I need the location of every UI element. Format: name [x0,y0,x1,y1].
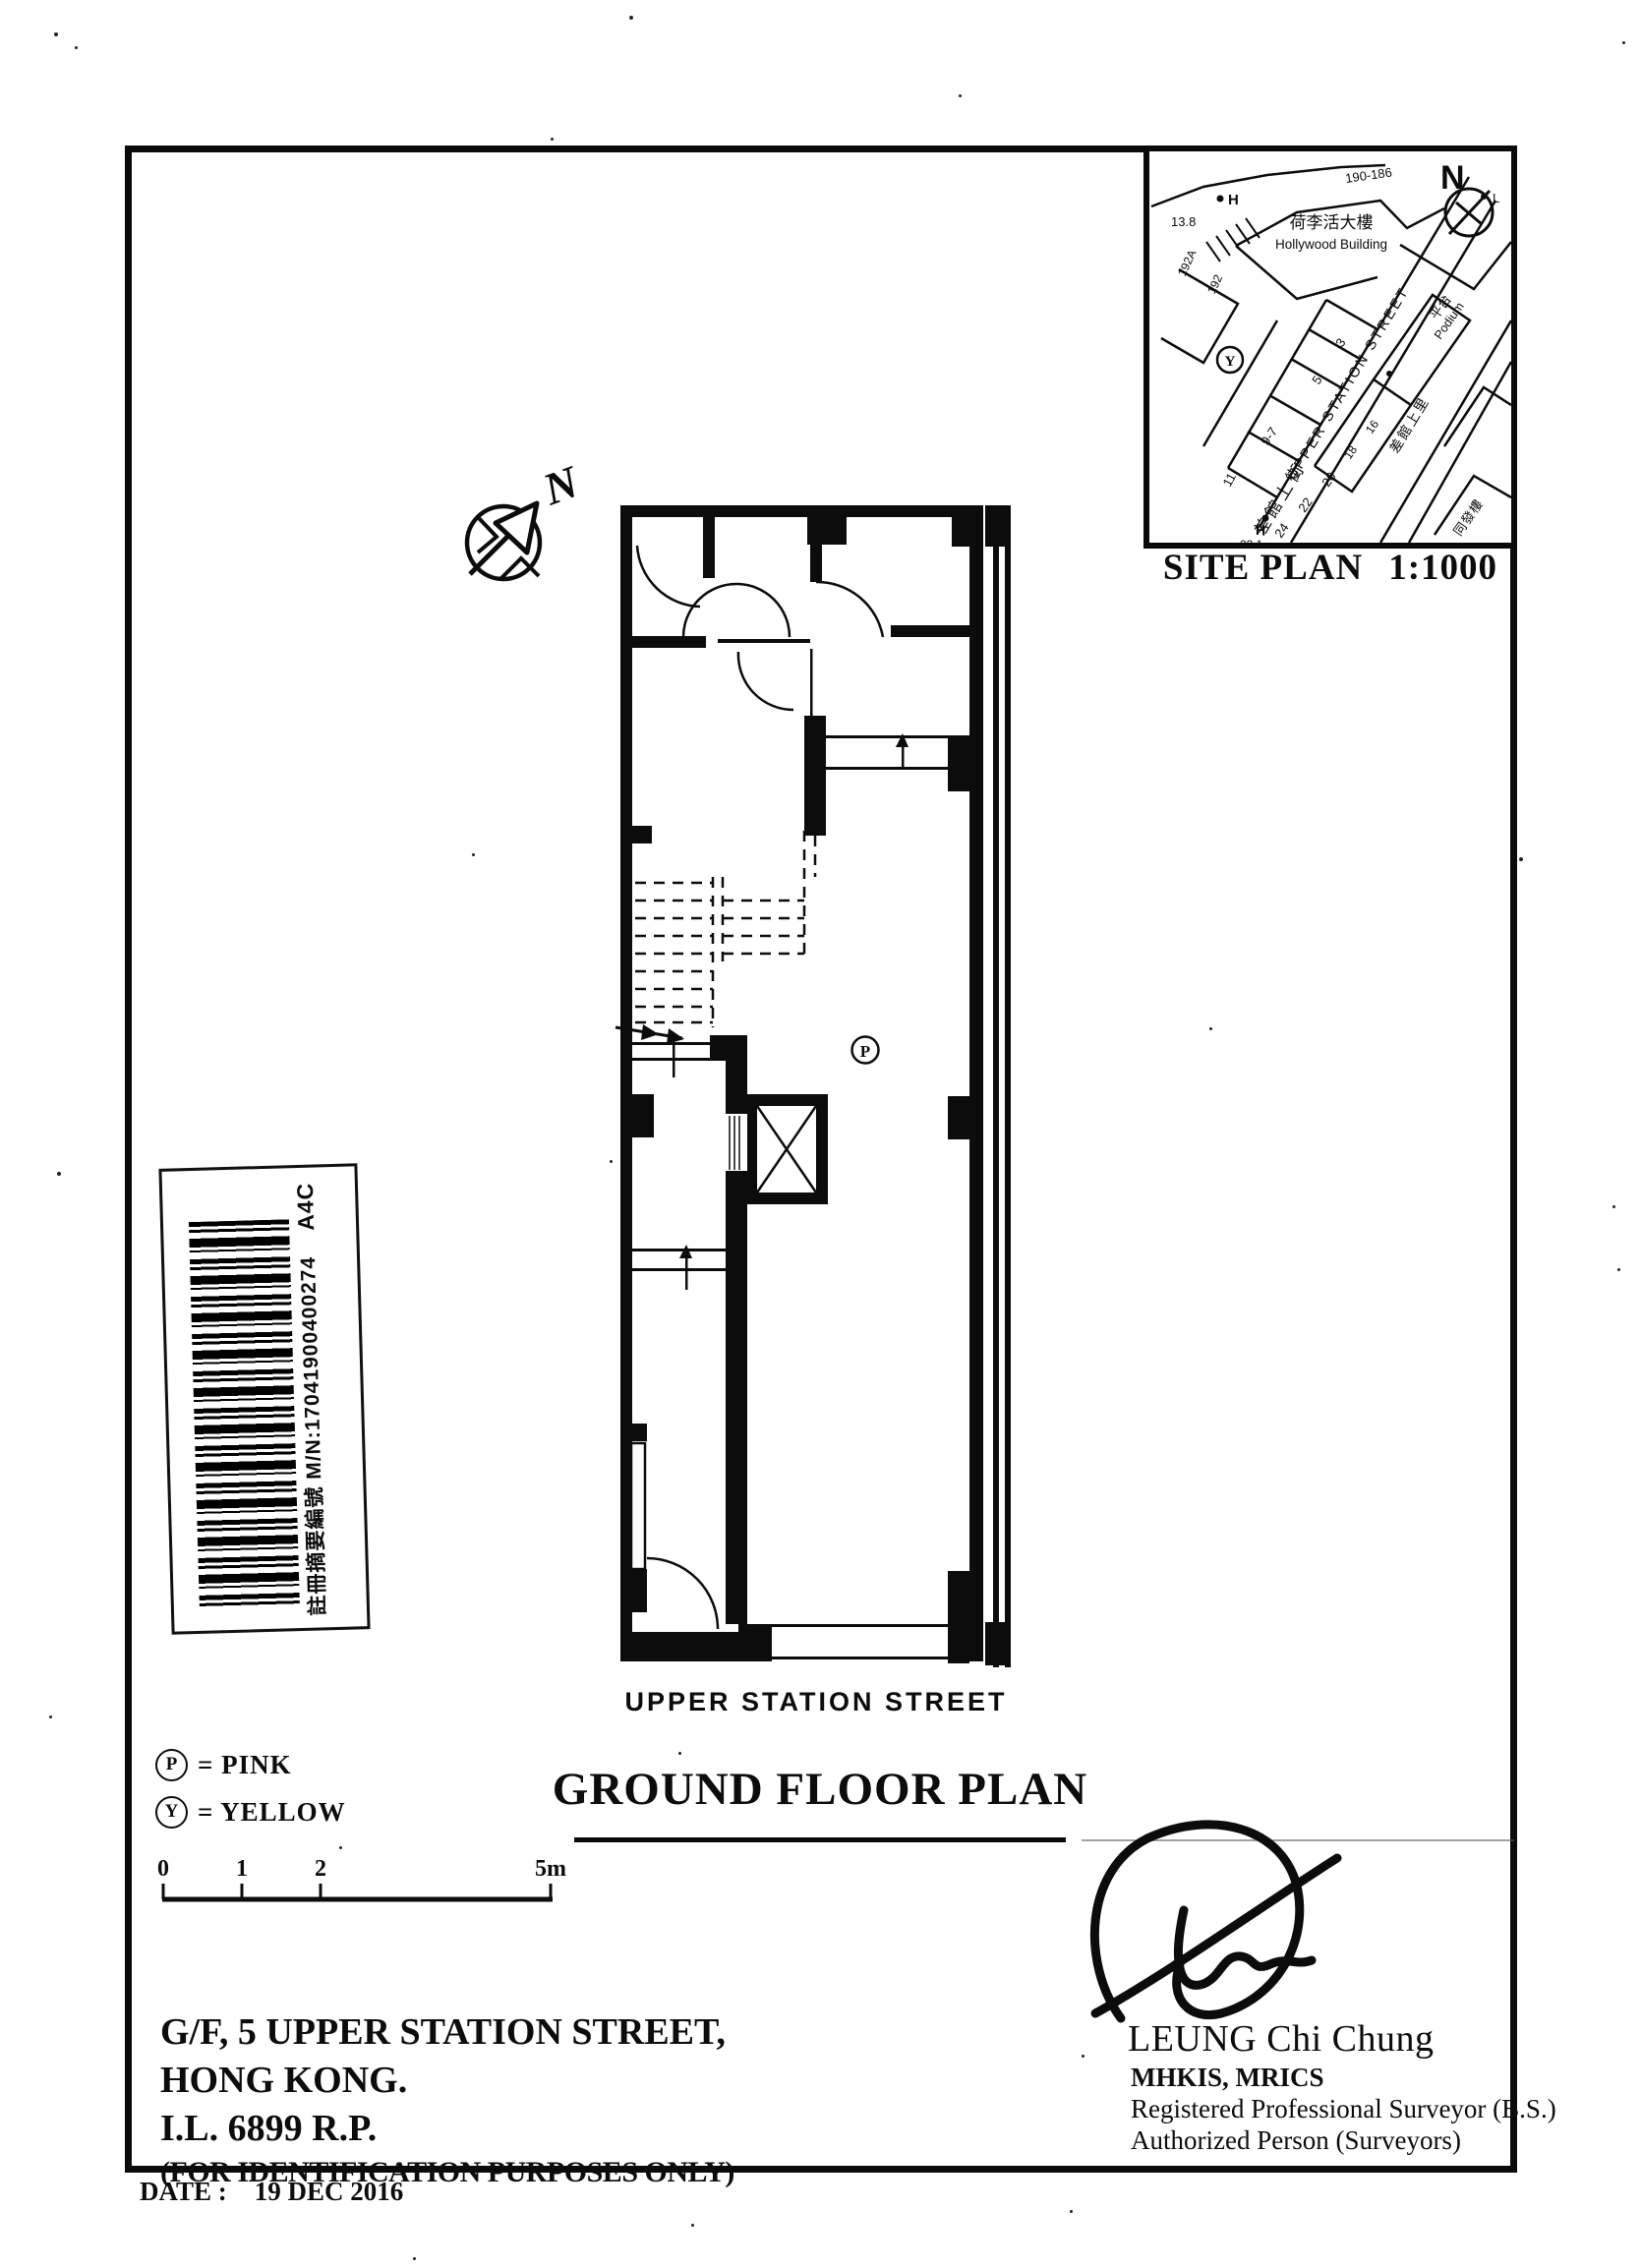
date-value: 19 DEC 2016 [255,2177,404,2206]
north-arrow-label: N [536,456,586,515]
surveyor-credentials: MHKIS, MRICS [1131,2063,1324,2093]
plan-top-wall [620,505,983,517]
lot-dot [1386,371,1392,377]
site-plan-no9-7: 9-7 [1258,425,1280,448]
scan-speck [339,1846,342,1849]
registration-barcode-label: 註冊摘要編號 M/N:17041900400274A4C [158,1163,370,1634]
site-plan-no18: 18 [1341,442,1360,461]
site-plan-no192: 192 [1204,272,1225,296]
site-plan-north-label: N [1440,159,1465,197]
scan-speck [1617,1268,1620,1271]
scan-speck [472,853,475,856]
entrance-door-leaf [631,1443,645,1569]
scan-speck [54,32,58,36]
site-plan-spot-top: 13.8 [1171,214,1196,229]
site-plan-h-bottom: H [1256,522,1265,538]
scan-speck [1519,857,1523,861]
plan-p-marker: P [860,1042,870,1061]
north-arrow-icon: N [440,454,617,602]
barcode-bars [189,1219,300,1607]
site-plan-caption-title: SITE PLAN [1163,548,1363,588]
site-plan-caption-scale: 1:1000 [1388,548,1497,588]
scale-bar: 0 1 2 5m [147,1854,580,1915]
scan-speck [1082,2055,1084,2058]
address-line-1: G/F, 5 UPPER STATION STREET, [160,2013,734,2051]
site-plan-map: Y 190-186 H 13.8 荷李活大樓 Hollywood Buildin… [1149,151,1511,543]
scale-tick-1: 1 [236,1856,248,1882]
barcode-suffix: A4C [292,1183,319,1232]
scan-speck [629,16,633,20]
door-swings [637,546,883,1629]
scale-tick-2: 2 [315,1856,326,1882]
site-plan-no192a: 192A [1175,248,1200,278]
scan-speck [1622,41,1625,44]
site-plan-caption: SITE PLAN1:1000 [1143,547,1517,589]
legend-yellow-row: Y = YELLOW [155,1795,346,1829]
site-plan-building-cn: 荷李活大樓 [1290,213,1374,232]
legend-pink-row: P = PINK [155,1748,346,1781]
scan-speck [1070,2210,1073,2213]
legend-pink-label: = PINK [198,1750,292,1780]
site-plan-spot-bottom: 23.1 [1240,538,1263,543]
site-plan-y-marker: Y [1225,354,1236,370]
date-label: DATE : [140,2177,227,2206]
surveyor-title-line: Registered Professional Surveyor (B.S.) [1131,2094,1556,2124]
address-line-2: HONG KONG. [160,2062,734,2099]
title-underline [574,1837,1066,1842]
site-plan-no3: 3 [1332,335,1348,350]
plan-right-wall [969,505,983,1661]
yellow-symbol-icon: Y [155,1796,188,1829]
scan-speck [57,1172,61,1176]
staircase-dashed-treads [635,831,815,1027]
scan-speck [413,2257,416,2260]
scale-tick-0: 0 [157,1856,169,1882]
authorized-person-line: Authorized Person (Surveyors) [1131,2125,1461,2156]
pink-symbol-icon: P [155,1749,188,1781]
floor-plan-drawing: P [608,492,1025,1671]
scan-speck [49,1716,52,1718]
l-marker-dot [1481,194,1487,200]
street-name-label: UPPER STATION STREET [608,1687,1025,1717]
site-plan-no22: 22 [1295,494,1316,514]
colour-legend: P = PINK Y = YELLOW [155,1748,346,1842]
date-row: DATE :19 DEC 2016 [140,2177,403,2207]
surveyor-name: LEUNG Chi Chung [1128,2017,1435,2061]
scan-speck [610,1160,613,1163]
scan-speck [691,2224,694,2227]
pink-area-marker: P [852,1037,879,1064]
scan-speck [959,94,962,97]
h-marker-dot [1217,196,1224,203]
lot-number-line: I.L. 6899 R.P. [160,2110,734,2147]
scan-speck [551,138,554,141]
scan-speck [1612,1205,1615,1208]
site-plan-inset: Y 190-186 H 13.8 荷李活大樓 Hollywood Buildin… [1143,145,1517,549]
site-plan-building-en: Hollywood Building [1275,237,1387,252]
scan-speck [678,1752,681,1755]
scanned-survey-plan-sheet: Y 190-186 H 13.8 荷李活大樓 Hollywood Buildin… [0,0,1641,2268]
drawing-title: GROUND FLOOR PLAN [551,1763,1089,1816]
legend-yellow-label: = YELLOW [198,1797,346,1828]
site-plan-l-marker: L [1493,191,1499,205]
scan-speck [1209,1027,1212,1030]
scan-speck [75,46,78,49]
site-plan-h-top: H [1228,192,1239,208]
surveyor-signature [1074,1817,1418,2038]
property-address-block: G/F, 5 UPPER STATION STREET, HONG KONG. … [160,2013,734,2187]
scale-tick-5m: 5m [535,1856,566,1882]
